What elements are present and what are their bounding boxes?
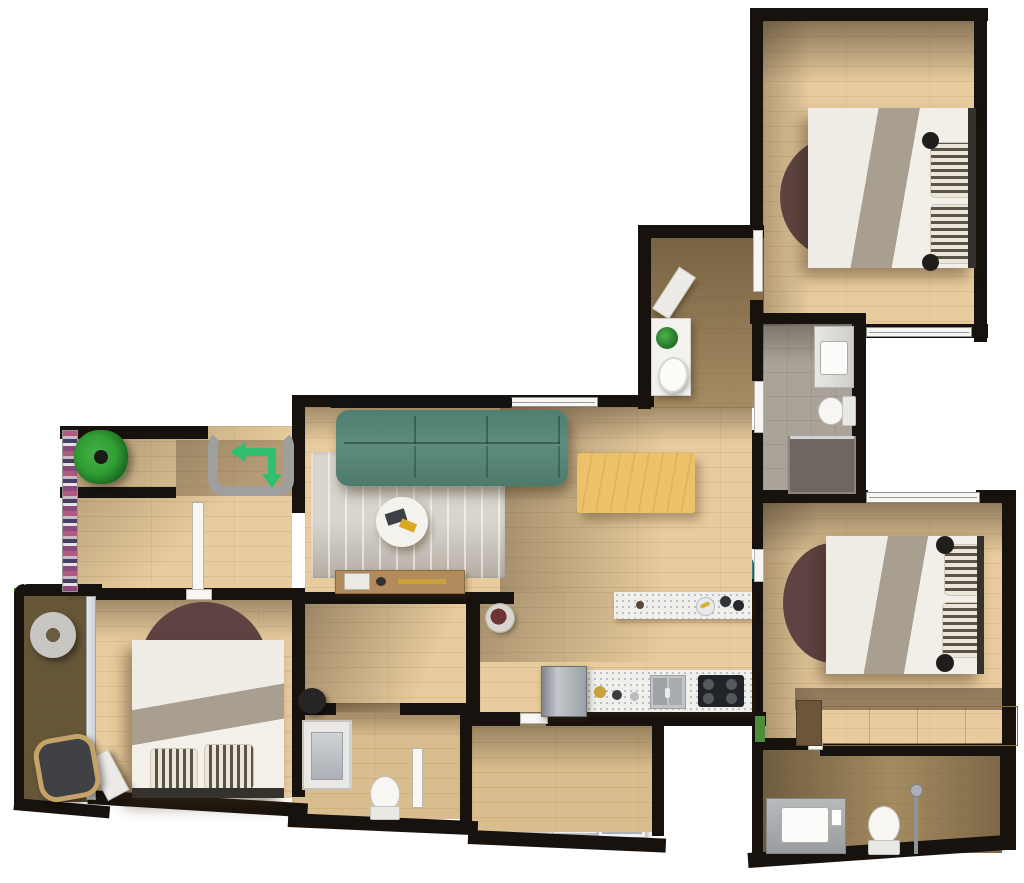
living-window xyxy=(504,397,598,407)
bedroom1-bed xyxy=(132,640,284,798)
wall xyxy=(638,225,651,409)
rattan-chair xyxy=(31,731,103,805)
plant-small xyxy=(656,327,678,349)
counter-items xyxy=(630,692,639,701)
shower-glass xyxy=(790,436,854,439)
toilet-bowl xyxy=(818,397,844,425)
pillow xyxy=(204,744,254,790)
burner xyxy=(726,693,737,704)
toilet-tank xyxy=(868,840,900,855)
wardrobe-row xyxy=(820,706,1018,746)
cushion xyxy=(936,536,954,554)
pillow xyxy=(942,602,982,658)
sink-basin xyxy=(781,807,829,843)
fridge xyxy=(541,666,587,717)
sink-basin xyxy=(820,341,848,375)
bowl-dark xyxy=(733,600,744,611)
decor-dish xyxy=(656,355,691,395)
bathroom1-toilet xyxy=(818,396,854,424)
kitchen-counter xyxy=(586,670,752,712)
dining-table xyxy=(577,453,695,513)
wall xyxy=(752,313,763,381)
wall xyxy=(752,503,763,549)
wall xyxy=(750,8,988,21)
book-stack xyxy=(344,573,370,590)
page-title: 3D apartment floor plan — top-down rende… xyxy=(0,21,1,22)
entry-arrows-icon xyxy=(214,436,288,492)
counter-items xyxy=(612,690,622,700)
bathroom2-door xyxy=(412,748,423,808)
toilet-bowl xyxy=(868,806,900,844)
bedroom2-window xyxy=(866,327,972,337)
wall xyxy=(18,584,102,596)
burner xyxy=(726,679,737,690)
flower-pot xyxy=(486,604,514,632)
wall xyxy=(652,718,664,836)
burner xyxy=(703,679,714,690)
pouf xyxy=(298,688,326,714)
wall xyxy=(460,712,472,828)
bedroom3-bed xyxy=(826,536,984,674)
sink-basin xyxy=(669,678,682,705)
dining-sideboard xyxy=(651,318,691,396)
bathroom2-toilet xyxy=(366,776,402,818)
shower-tray xyxy=(311,732,343,780)
toilet-tank xyxy=(370,806,400,820)
sofa-seam xyxy=(344,416,560,444)
counter-items xyxy=(594,686,606,698)
pillow xyxy=(150,748,198,790)
breakfast-bar xyxy=(614,592,752,619)
bathroom1-shower xyxy=(788,436,856,494)
cushion xyxy=(936,654,954,672)
gas-hob xyxy=(698,675,744,707)
hallway2-floor xyxy=(305,592,466,712)
sofa xyxy=(336,410,568,486)
bedroom2-door xyxy=(753,230,763,292)
bathroom3-toilet xyxy=(866,806,900,854)
plant-pot xyxy=(94,450,108,464)
pillow xyxy=(930,142,972,198)
headboard xyxy=(968,108,976,268)
wall xyxy=(752,579,763,607)
wall xyxy=(638,225,764,238)
sofa-seat-seam xyxy=(344,446,560,478)
headboard xyxy=(977,536,984,674)
entry-inner-door xyxy=(192,502,204,590)
decor-yellow xyxy=(399,518,417,532)
cushion xyxy=(922,132,939,149)
decor-tray xyxy=(398,579,446,584)
media-console xyxy=(335,570,465,594)
shower-glass xyxy=(349,722,352,788)
bedroom3-door xyxy=(754,549,764,582)
bathroom2-shower xyxy=(302,720,352,790)
balcony-side-table xyxy=(30,612,76,658)
bedroom1-door xyxy=(186,589,212,600)
wardrobe-cabinet xyxy=(796,700,822,746)
wall xyxy=(14,584,24,810)
bathroom3-vanity xyxy=(766,798,846,854)
faucet xyxy=(665,688,670,698)
wall xyxy=(750,8,763,228)
bathroom1-vanity xyxy=(814,326,854,388)
shower-column xyxy=(914,788,918,854)
bedroom3-window xyxy=(866,492,980,503)
toilet-tank xyxy=(842,396,856,426)
kitchen-sink xyxy=(650,675,686,709)
cup xyxy=(636,601,644,609)
bedroom2-bed xyxy=(808,108,976,268)
burner xyxy=(703,693,714,704)
wall xyxy=(752,313,862,324)
grass-patch xyxy=(755,716,765,742)
decor-dark xyxy=(376,577,386,586)
bathroom1-door xyxy=(754,381,764,433)
shower-head xyxy=(910,784,923,797)
floor-plan-canvas: 3D apartment floor plan — top-down rende… xyxy=(0,0,1024,883)
cup xyxy=(831,809,842,826)
entry-plant xyxy=(74,430,128,484)
headboard xyxy=(132,788,284,798)
coffee-table xyxy=(376,497,428,547)
bowl-dark xyxy=(720,596,731,607)
wall-tv xyxy=(330,397,512,408)
laundry-floor xyxy=(472,712,652,832)
pillow xyxy=(930,204,972,264)
cushion xyxy=(922,254,939,271)
